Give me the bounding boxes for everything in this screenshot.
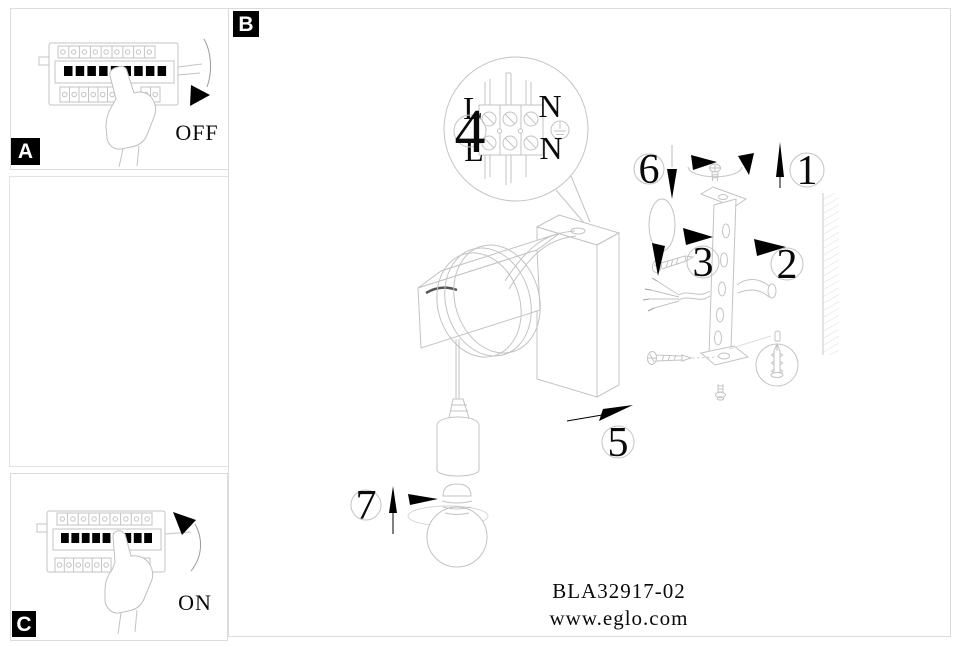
panel-empty: [9, 176, 230, 467]
wall-hatch: [823, 193, 839, 355]
rotate-arrow-curve: [204, 39, 211, 87]
pointing-hand-icon: [105, 531, 153, 613]
off-state-label: OFF: [175, 120, 218, 145]
arrow-6-icon: [667, 169, 677, 199]
light-bulb-drawing: [427, 484, 487, 567]
hand-wrist-lines: [118, 610, 137, 634]
panel-c: ON C: [10, 473, 228, 641]
breaker-off-drawing: OFF: [11, 9, 228, 169]
on-direction-arrow-icon: [173, 512, 196, 535]
panel-c-letter: C: [16, 614, 31, 635]
instruction-sheet: OFF A: [0, 0, 960, 647]
arrow-5-icon: [599, 405, 633, 421]
model-number: BLA32917-02: [552, 579, 686, 603]
arrow-1-up-icon: [776, 142, 784, 177]
panel-a-letter: A: [18, 141, 33, 162]
wall-lamp-drawing: [408, 215, 619, 567]
on-state-label: ON: [178, 590, 212, 615]
terminal-label-bottom-right: N: [539, 130, 562, 166]
arrow-1-right-icon: [738, 153, 754, 175]
arrow-7-flag-icon: [408, 494, 438, 505]
callout-7: 7: [356, 483, 377, 529]
panel-b-main: L N L N 4: [228, 8, 951, 637]
panel-a-label: A: [11, 138, 40, 165]
off-direction-arrow-icon: [190, 85, 210, 106]
callout-6: 6: [639, 147, 660, 193]
terminal-label-top-right: N: [538, 88, 561, 124]
rotate-arrow-curve: [191, 524, 201, 571]
website-url: www.eglo.com: [550, 606, 689, 630]
breaker-switches-up: [61, 533, 152, 543]
arrow-7-spike-icon: [389, 486, 397, 513]
pointing-hand-icon: [106, 66, 156, 149]
callout-3: 3: [693, 240, 714, 286]
callout-4: 4: [455, 98, 486, 166]
panel-c-label: C: [12, 611, 36, 637]
panel-b-label: B: [233, 11, 259, 37]
callout-5: 5: [608, 420, 629, 466]
screw-small-icon: [716, 384, 726, 400]
assembly-diagram: L N L N 4: [229, 9, 950, 636]
breaker-on-drawing: ON: [11, 474, 227, 640]
arrow-5-line: [567, 415, 602, 421]
panel-b-letter: B: [238, 14, 253, 35]
callout-1: 1: [797, 148, 818, 194]
callout-2: 2: [777, 242, 798, 288]
panel-a: OFF A: [10, 8, 229, 170]
leader-loop: [649, 199, 675, 251]
